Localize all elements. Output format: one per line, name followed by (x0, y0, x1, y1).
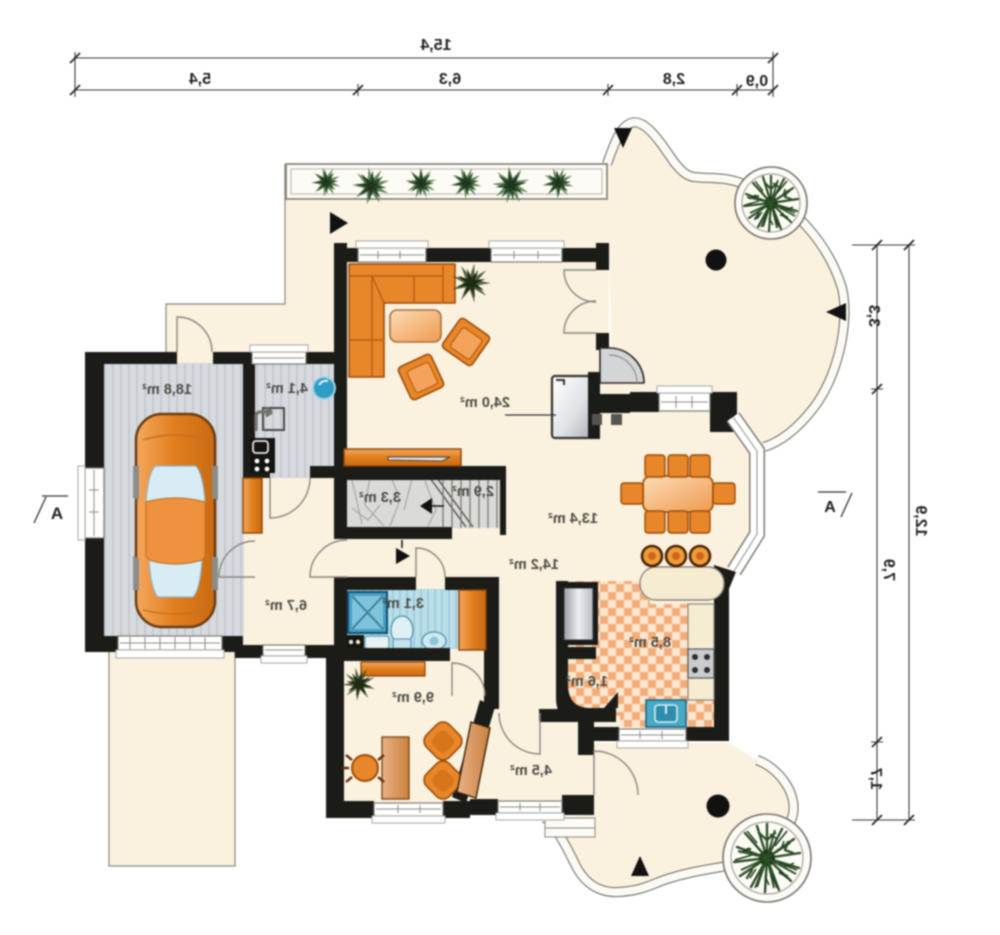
svg-text:0,9: 0,9 (746, 73, 768, 90)
svg-text:14,2 m²: 14,2 m² (509, 557, 559, 573)
svg-text:2,8: 2,8 (663, 71, 685, 88)
svg-text:6,3: 6,3 (439, 71, 461, 88)
svg-text:A: A (51, 504, 63, 523)
svg-text:15,4: 15,4 (420, 37, 451, 54)
svg-text:1,7: 1,7 (867, 768, 884, 790)
svg-text:18,8 m²: 18,8 m² (142, 382, 192, 398)
svg-text:8,5 m²: 8,5 m² (629, 635, 671, 651)
svg-text:7,9: 7,9 (880, 559, 897, 581)
svg-text:3,1 m²: 3,1 m² (382, 596, 424, 612)
svg-text:13,4 m²: 13,4 m² (548, 511, 598, 527)
svg-text:3,3 m²: 3,3 m² (359, 490, 401, 506)
svg-text:1,6 m²: 1,6 m² (566, 674, 608, 690)
svg-text:24,0 m²: 24,0 m² (460, 395, 510, 411)
svg-text:4,5 m²: 4,5 m² (510, 763, 552, 779)
svg-text:5,4: 5,4 (189, 71, 211, 88)
svg-text:4,1 m²: 4,1 m² (266, 381, 308, 397)
svg-text:A: A (824, 499, 836, 516)
svg-text:12,9: 12,9 (912, 505, 929, 536)
svg-text:2,9 m²: 2,9 m² (452, 484, 494, 500)
svg-text:6,7 m²: 6,7 m² (265, 598, 307, 614)
svg-text:3,3: 3,3 (865, 305, 882, 327)
svg-text:9,9 m²: 9,9 m² (392, 690, 434, 706)
